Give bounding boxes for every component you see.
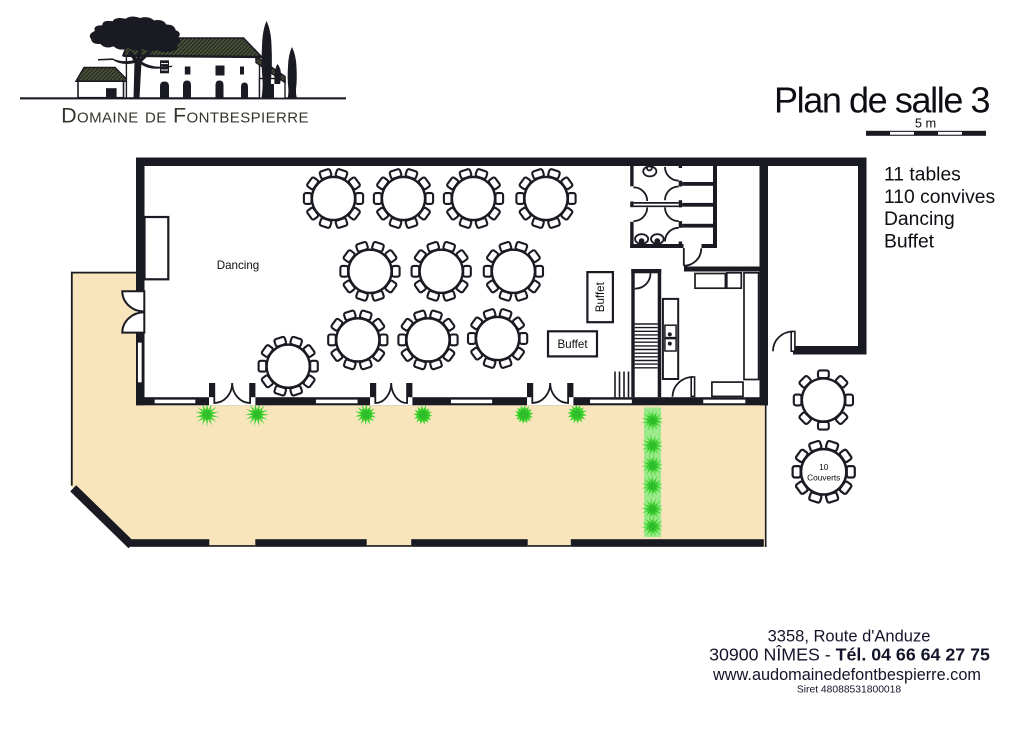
svg-text:Buffet: Buffet (884, 231, 935, 252)
svg-text:Couverts: Couverts (807, 473, 840, 483)
svg-text:Plan de salle 3: Plan de salle 3 (774, 80, 990, 121)
svg-text:Siret 48088531800018: Siret 48088531800018 (797, 685, 901, 696)
svg-text:30900 NÎMES - Tél. 04 66 64 27: 30900 NÎMES - Tél. 04 66 64 27 75 (709, 644, 990, 665)
svg-text:110 convives: 110 convives (884, 187, 995, 208)
svg-text:5 m: 5 m (915, 116, 936, 131)
svg-text:3358, Route d'Anduze: 3358, Route d'Anduze (768, 628, 931, 646)
svg-text:Dancing: Dancing (884, 209, 955, 230)
svg-text:Buffet: Buffet (594, 281, 607, 312)
svg-text:Domaine de Fontbespierre: Domaine de Fontbespierre (61, 104, 309, 128)
svg-text:www.audomainedefontbespierre.c: www.audomainedefontbespierre.com (712, 666, 981, 684)
svg-text:Dancing: Dancing (217, 259, 260, 272)
svg-text:10: 10 (819, 462, 829, 472)
svg-text:11 tables: 11 tables (884, 165, 961, 186)
svg-text:Buffet: Buffet (557, 338, 588, 351)
